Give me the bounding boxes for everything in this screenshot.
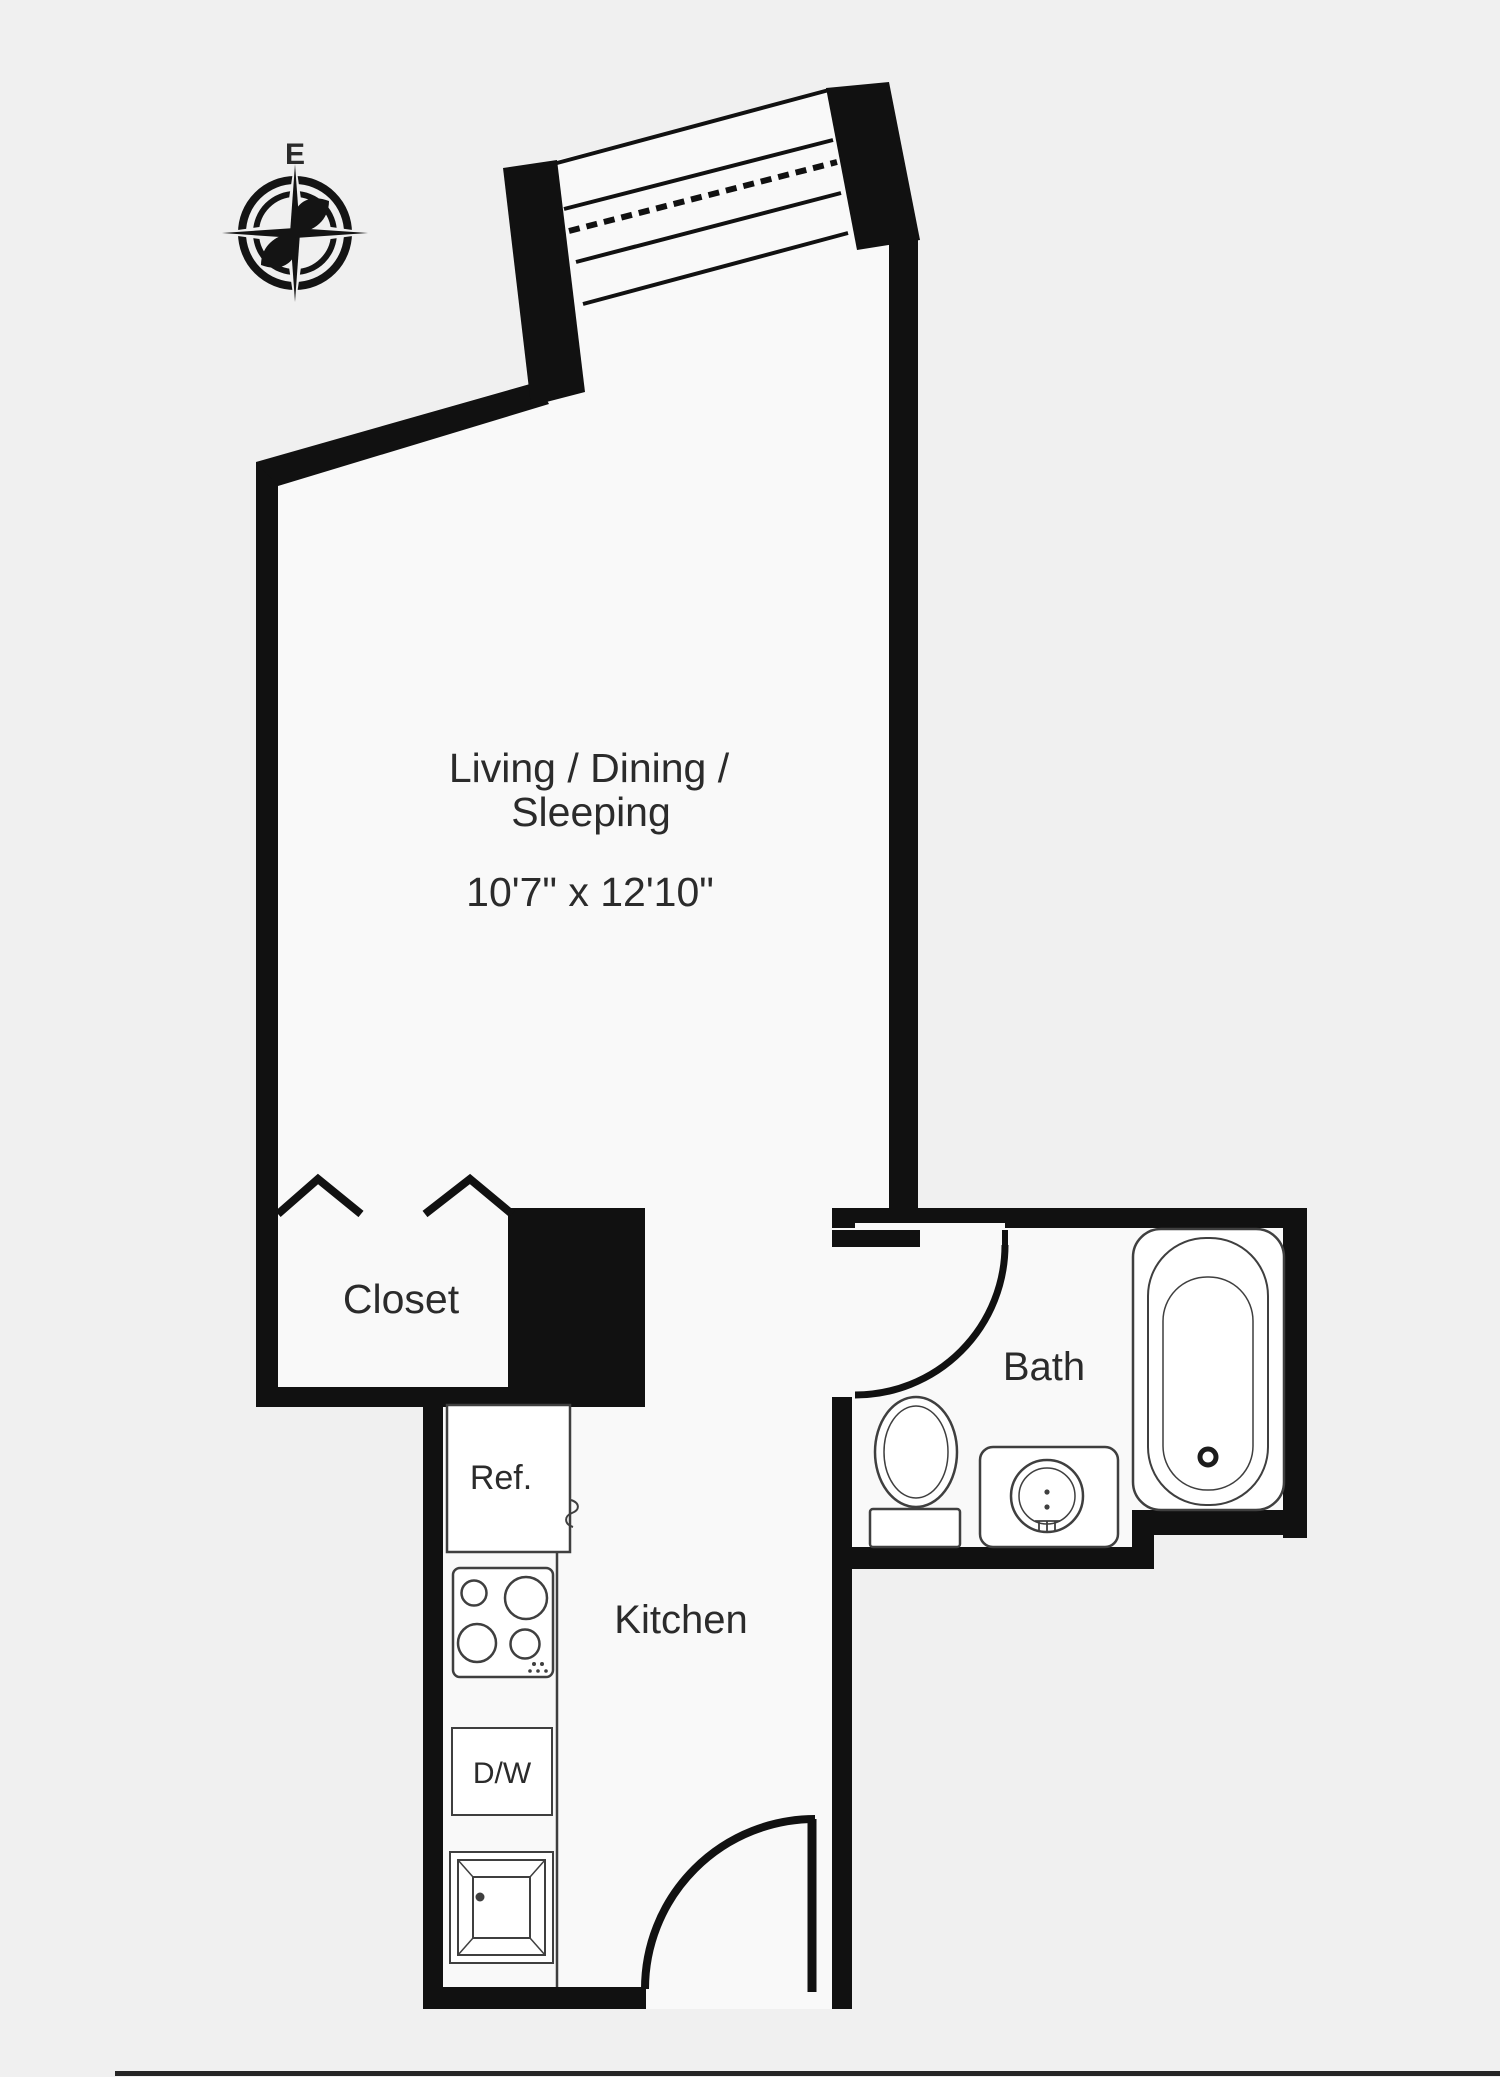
watermark-line	[115, 2071, 1500, 2076]
toilet-bowl	[875, 1397, 957, 1507]
wall-kitchen-bottom	[423, 1987, 646, 2009]
wall-kitchen-left	[423, 1387, 443, 2009]
wall-left	[256, 462, 278, 1407]
toilet-tank	[870, 1509, 960, 1547]
wall-closet-kitchen-block	[508, 1208, 645, 1407]
living-room-label-line2: Sleeping	[511, 789, 671, 835]
living-room-dimensions: 10'7" x 12'10"	[466, 869, 714, 915]
compass-direction-label: E	[285, 138, 305, 171]
dishwasher-label: D/W	[473, 1757, 532, 1790]
bath-label: Bath	[1003, 1345, 1085, 1389]
wall-bath-bottom-left	[832, 1547, 1154, 1569]
wall-kitchen-right	[832, 1397, 852, 2009]
floor-area	[256, 82, 1307, 2009]
floor-plan: E Living / Dining / Sleeping 10'7" x 12'…	[0, 0, 1500, 2077]
kitchen-label: Kitchen	[614, 1598, 747, 1642]
closet-label: Closet	[343, 1276, 460, 1322]
wall-bath-right	[1283, 1208, 1307, 1538]
wall-living-right	[889, 240, 918, 1208]
bath-door-jamb	[832, 1230, 920, 1247]
bathtub-drain	[1200, 1449, 1216, 1465]
compass-icon	[216, 158, 374, 308]
bathtub	[1133, 1229, 1284, 1510]
wall-bath-bottom-right	[1152, 1510, 1307, 1535]
refrigerator-label: Ref.	[470, 1459, 532, 1497]
living-room-label-line1: Living / Dining /	[449, 745, 730, 791]
kitchen-sink-drain	[476, 1893, 485, 1902]
